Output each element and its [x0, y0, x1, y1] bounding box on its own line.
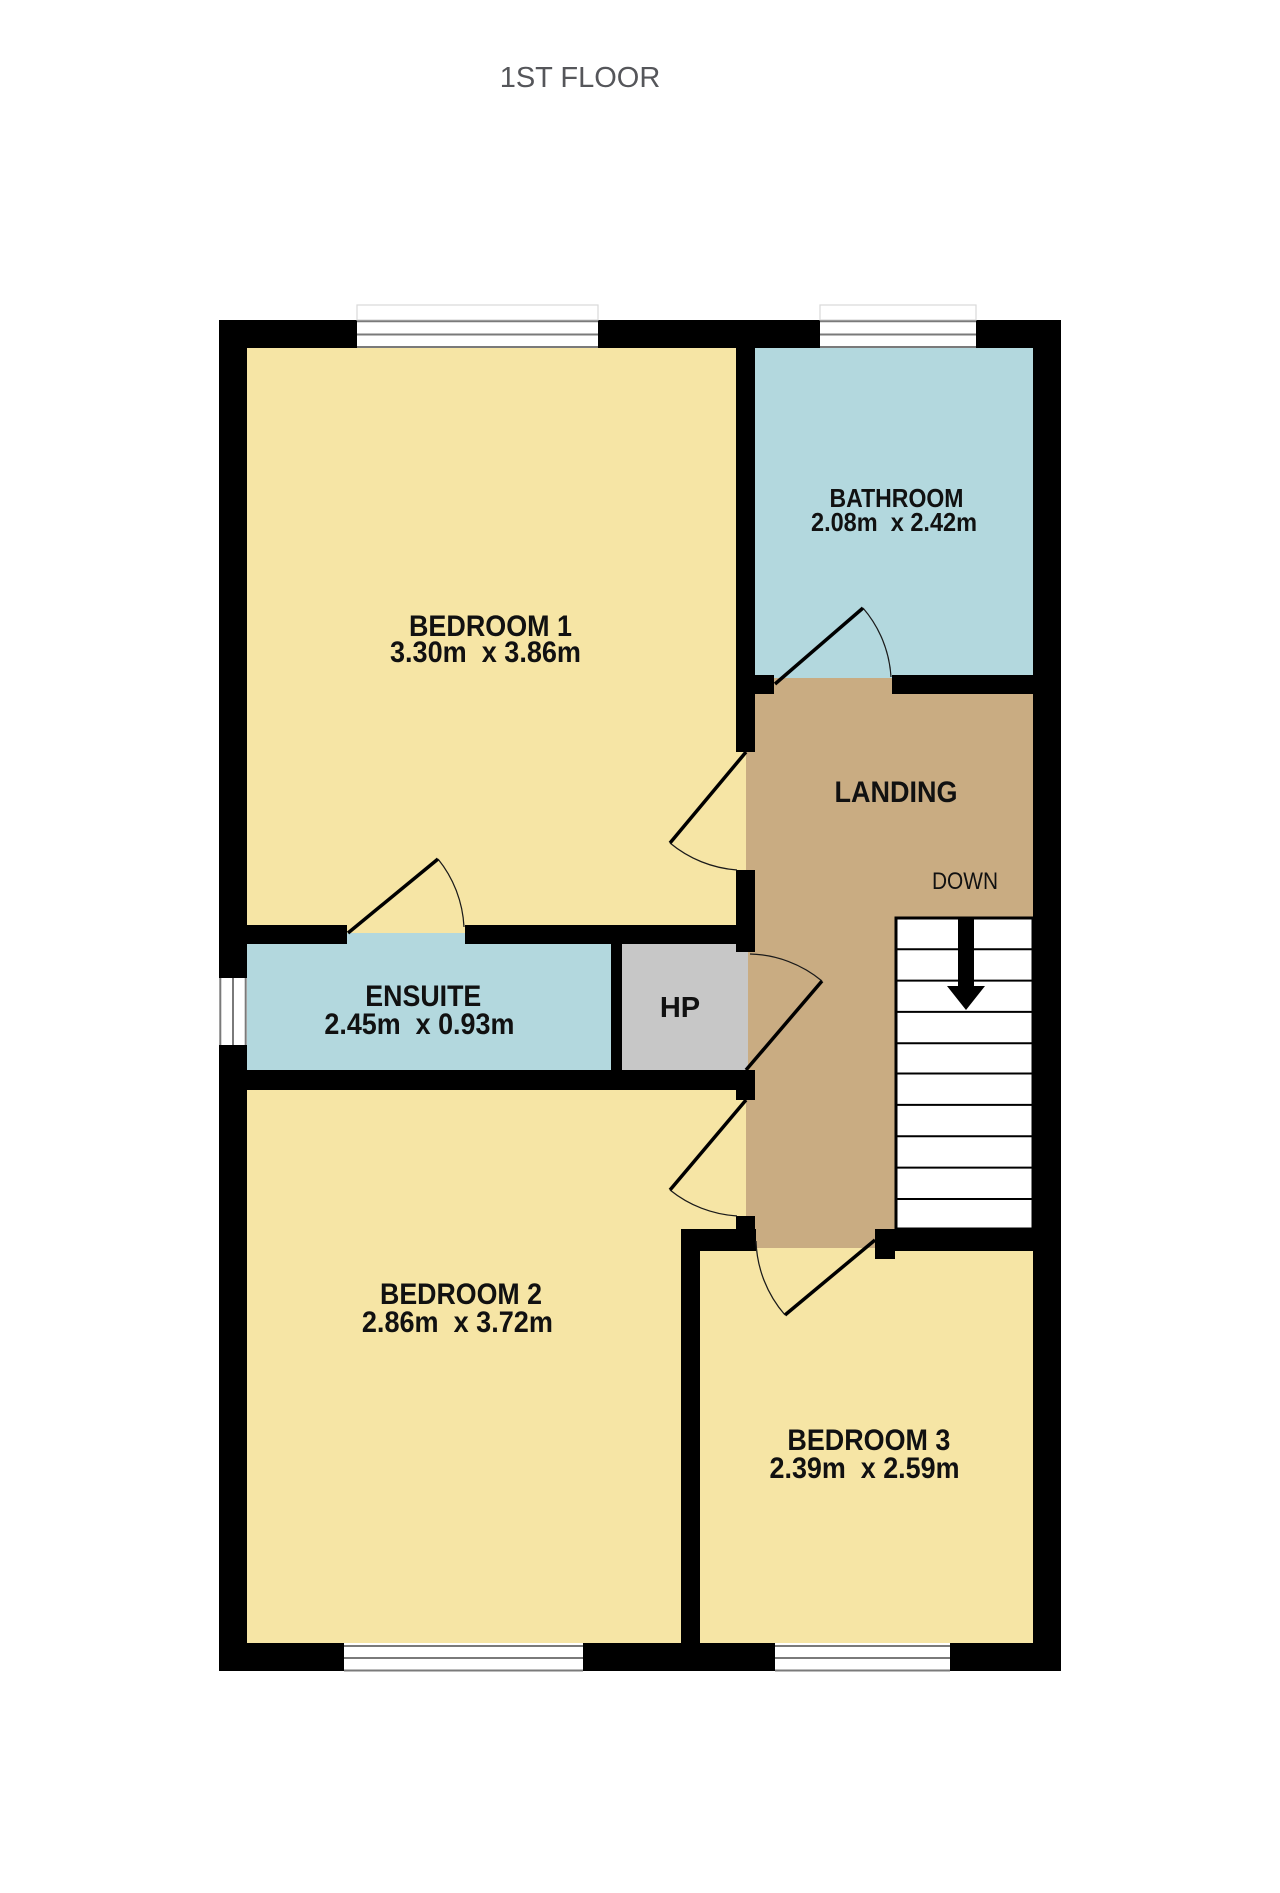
svg-text:2.45m x 0.93m: 2.45m x 0.93m	[324, 1008, 514, 1041]
svg-text:2.86m x 3.72m: 2.86m x 3.72m	[362, 1306, 553, 1339]
svg-text:DOWN: DOWN	[932, 868, 998, 895]
svg-text:1ST FLOOR: 1ST FLOOR	[500, 62, 661, 94]
svg-text:LANDING: LANDING	[835, 776, 958, 809]
svg-text:3.30m x 3.86m: 3.30m x 3.86m	[390, 636, 581, 669]
svg-text:HP: HP	[660, 992, 700, 1024]
svg-text:2.08m x 2.42m: 2.08m x 2.42m	[811, 507, 977, 537]
svg-text:2.39m x 2.59m: 2.39m x 2.59m	[770, 1452, 960, 1485]
